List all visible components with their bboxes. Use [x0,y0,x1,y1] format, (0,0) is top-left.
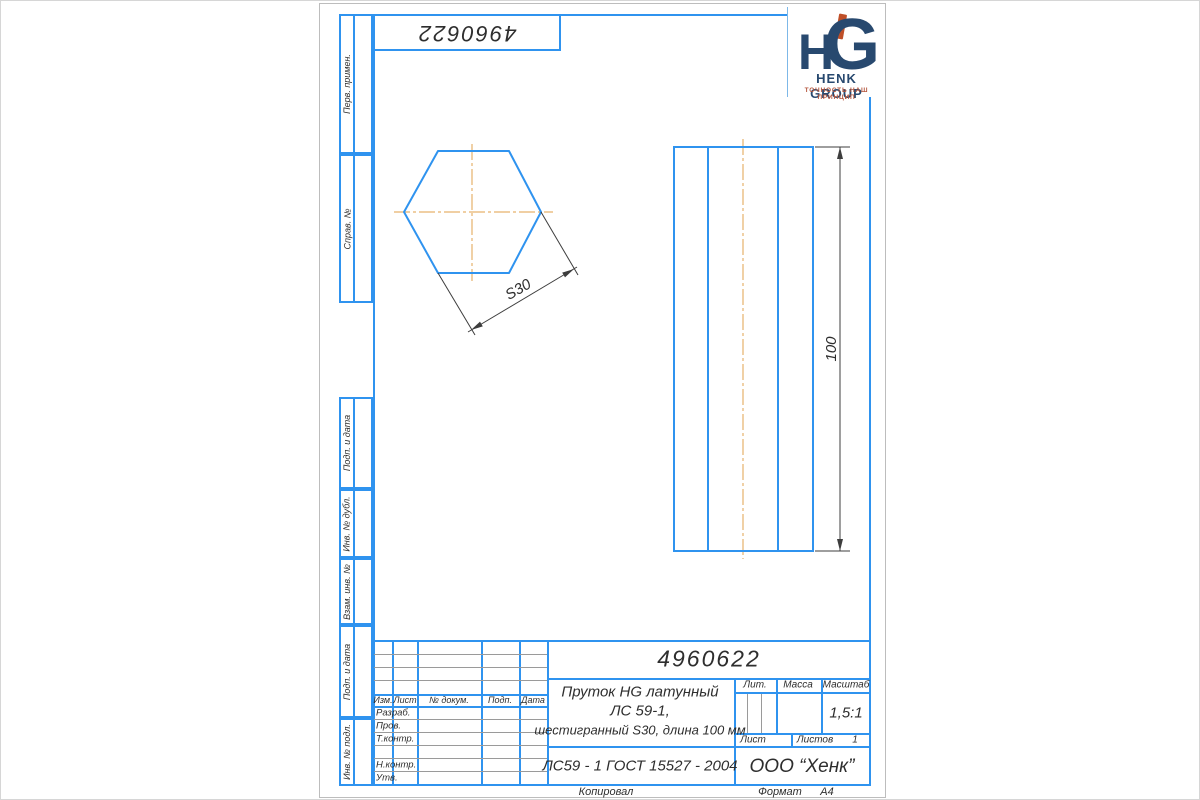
titleblock-line [519,640,521,786]
titleblock-line [373,640,871,642]
margin-strip-text: Справ. № [342,208,352,249]
margin-strip-vzam-inv: Взам. инв. № [339,558,373,625]
top-number-box: 4960622 [373,14,561,51]
scale-label: Масштаб [823,680,870,691]
margin-strip-inv-podl: Инв. № подл. [339,718,373,786]
titleblock-gridline [374,745,547,746]
titleblock-line [776,678,778,735]
strip-divider [353,720,355,784]
margin-strip-text: Подп. и дата [342,643,352,699]
strip-divider [353,156,355,301]
margin-strip-label: Инв. № дубл. [341,491,353,556]
titleblock-line [734,692,871,694]
row-utv: Утв. [376,773,398,784]
mass-label: Масса [783,680,813,691]
margin-strip-label: Справ. № [341,156,353,301]
titleblock-line [417,640,419,786]
strip-divider [353,16,355,152]
titleblock-line [481,640,483,786]
s30-extension-line-1 [438,273,475,335]
strip-divider [353,627,355,716]
sheets-value: 1 [852,735,858,746]
len-arrowhead-bottom [837,539,843,551]
part-name-line1: Пруток HG латунный [561,684,718,701]
s30-arrowhead-left [471,322,483,330]
sheet-label: Лист [740,735,766,746]
row-nkontr: Н.контр. [376,760,416,771]
lit-cell-divider [747,694,748,733]
titleblock-line [791,733,793,748]
drawing-views: S30 100 [391,131,861,571]
copied-by-label: Копировал [579,786,634,798]
lit-label: Лит. [743,680,766,691]
titleblock-gridline [374,680,547,681]
format-value: А4 [820,786,833,798]
s30-extension-line-2 [541,212,578,275]
strip-divider [353,399,355,487]
margin-strip-text: Инв. № дубл. [342,496,352,551]
col-izm: Изм. [373,695,392,705]
s30-dimension-text: S30 [502,275,534,303]
row-prov: Пров. [376,721,401,732]
strip-divider [353,560,355,623]
s30-arrowhead-right [562,269,574,277]
drawing-page: Перв. примен. Справ. № Подп. и дата Инв.… [0,0,1200,800]
margin-strip-label: Перв. примен. [341,16,353,152]
company-name: ООО “Хенк” [750,756,855,778]
scale-value: 1,5:1 [829,705,862,722]
sheets-label: Листов [797,735,833,746]
margin-strip-label: Подп. и дата [341,627,353,716]
margin-strip-inv-dubl: Инв. № дубл. [339,489,373,558]
format-label: Формат [758,786,802,798]
margin-strip-text: Перв. примен. [342,54,352,114]
col-list: Лист [393,695,416,705]
margin-strip-label: Взам. инв. № [341,560,353,623]
margin-strip-podp-data-1: Подп. и дата [339,397,373,489]
strip-divider [353,491,355,556]
titleblock-gridline [374,667,547,668]
margin-strip-label: Инв. № подл. [341,720,353,784]
henk-group-logo: H G HENK GROUP ТОЧНОСТЬ НАШ ПРИНЦИП [787,7,885,97]
col-data: Дата [521,695,545,705]
len-dimension-text: 100 [823,336,840,362]
top-number-text: 4960622 [417,20,517,46]
logo-tagline: ТОЧНОСТЬ НАШ ПРИНЦИП [788,87,885,101]
col-podp: Подп. [488,695,512,705]
margin-strip-sprav-no: Справ. № [339,154,373,303]
lit-cell-divider [761,694,762,733]
row-tkontr: Т.контр. [376,734,414,745]
part-name-line2: ЛС 59-1, [610,703,669,720]
margin-strip-perv-primen: Перв. примен. [339,14,373,154]
margin-strip-label: Подп. и дата [341,399,353,487]
margin-strip-text: Взам. инв. № [342,564,352,620]
titleblock-line [547,746,871,748]
titleblock-gridline [374,771,547,772]
doc-number: 4960622 [657,646,761,673]
col-dokum: № докум. [429,695,469,705]
material-spec: ЛС59 - 1 ГОСТ 15527 - 2004 [542,758,737,775]
margin-strip-text: Подп. и дата [342,415,352,471]
row-razrab: Разраб. [376,708,410,719]
margin-strip-text: Инв. № подл. [342,724,352,780]
titleblock-gridline [374,654,547,655]
len-arrowhead-top [837,147,843,159]
margin-strip-podp-data-2: Подп. и дата [339,625,373,718]
part-name-line3: шестигранный S30, длина 100 мм [534,723,745,738]
